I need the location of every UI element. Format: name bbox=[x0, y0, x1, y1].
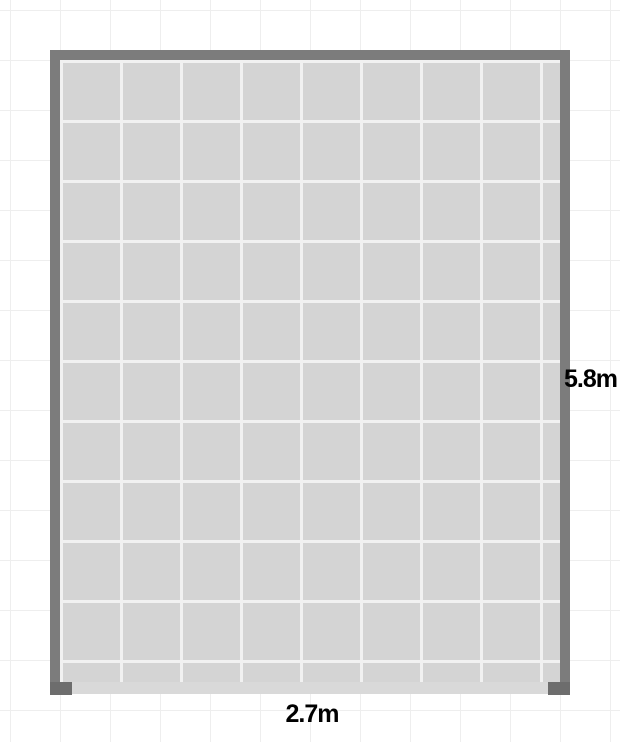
wall-bottom-right-end-cap[interactable] bbox=[548, 682, 570, 695]
wall-left[interactable] bbox=[50, 50, 60, 695]
wall-bottom-left-end-cap[interactable] bbox=[50, 682, 72, 695]
room[interactable] bbox=[50, 50, 570, 695]
room-floor[interactable] bbox=[60, 60, 560, 682]
planner-canvas[interactable]: 5.8m 2.7m bbox=[0, 0, 620, 742]
wall-bottom-opening[interactable] bbox=[60, 682, 560, 694]
room-width-dimension-label: 2.7m bbox=[262, 701, 362, 727]
room-height-dimension-label: 5.8m bbox=[564, 366, 617, 392]
wall-top[interactable] bbox=[50, 50, 570, 60]
